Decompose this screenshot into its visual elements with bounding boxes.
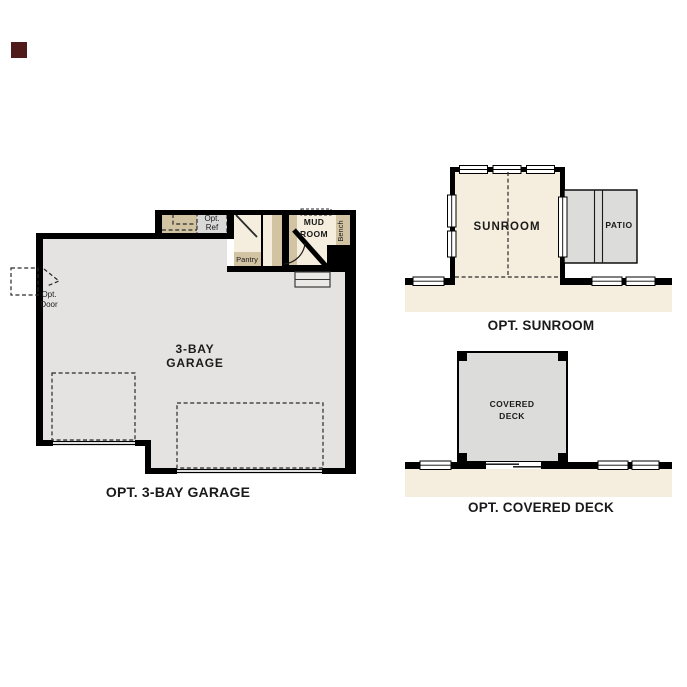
garage-room-label-2: GARAGE xyxy=(166,356,223,370)
closet-shelf xyxy=(272,214,282,266)
covered-deck-plan: COVERED DECK OPT. COVERED DECK xyxy=(405,352,672,515)
red-marker-square xyxy=(11,42,27,58)
sunroom-room-label: SUNROOM xyxy=(473,221,540,233)
sunroom-plan: SUNROOM PATIO OPT. SUNROOM xyxy=(405,166,672,334)
opt-door-dashed-box xyxy=(11,268,38,295)
garage-plan: Opt. Ref Pantry MUD ROOM Bench Opt. Door… xyxy=(11,209,356,500)
deck-room-label-2: DECK xyxy=(499,411,525,421)
mudroom-shelf xyxy=(289,214,297,265)
opt-ref-label-1: Opt. xyxy=(204,214,219,223)
bench-label: Bench xyxy=(336,220,345,241)
mud-room-label-2: ROOM xyxy=(300,229,328,239)
opt-door-label-1: Opt. xyxy=(41,290,56,299)
house-interior-band-deck xyxy=(405,469,672,497)
sunroom-caption: OPT. SUNROOM xyxy=(488,318,595,333)
garage-door-1 xyxy=(53,440,135,446)
opt-door-label-2: Door xyxy=(40,300,58,309)
garage-room-label-1: 3-BAY xyxy=(176,342,215,356)
mud-room-label-1: MUD xyxy=(304,217,325,227)
deck-caption: OPT. COVERED DECK xyxy=(468,500,614,515)
floorplan-svg: Opt. Ref Pantry MUD ROOM Bench Opt. Door… xyxy=(0,0,687,687)
opt-ref-label-2: Ref xyxy=(206,223,219,232)
floorplan-options-sheet: Opt. Ref Pantry MUD ROOM Bench Opt. Door… xyxy=(0,0,687,687)
patio-label: PATIO xyxy=(605,220,632,230)
pantry-label: Pantry xyxy=(236,255,258,264)
deck-sliding-door xyxy=(486,462,541,469)
deck-room-label-1: COVERED xyxy=(490,399,535,409)
house-interior-band xyxy=(405,285,672,312)
garage-door-2 xyxy=(177,468,322,474)
garage-caption: OPT. 3-BAY GARAGE xyxy=(106,484,250,500)
